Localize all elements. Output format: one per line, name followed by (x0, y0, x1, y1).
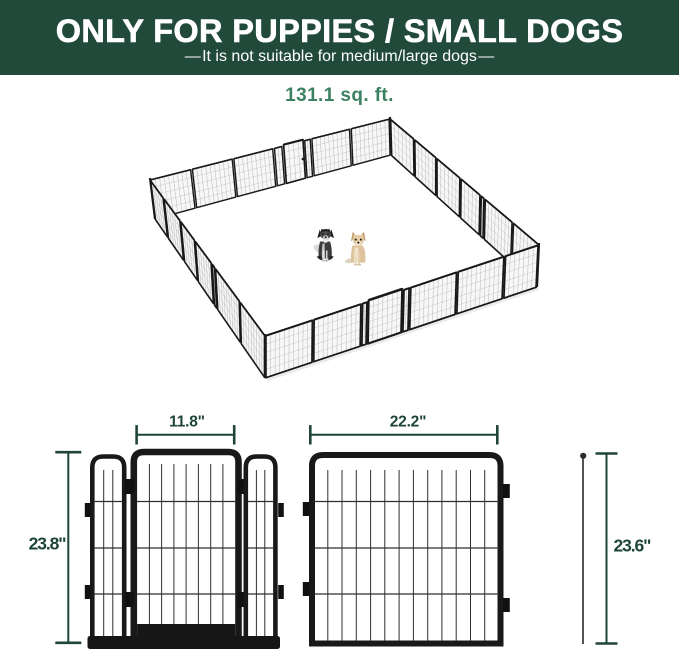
svg-text:23.6": 23.6" (614, 536, 652, 556)
svg-text:11.8": 11.8" (169, 414, 205, 431)
svg-text:22.2": 22.2" (390, 414, 427, 431)
svg-text:23.8": 23.8" (29, 534, 67, 554)
